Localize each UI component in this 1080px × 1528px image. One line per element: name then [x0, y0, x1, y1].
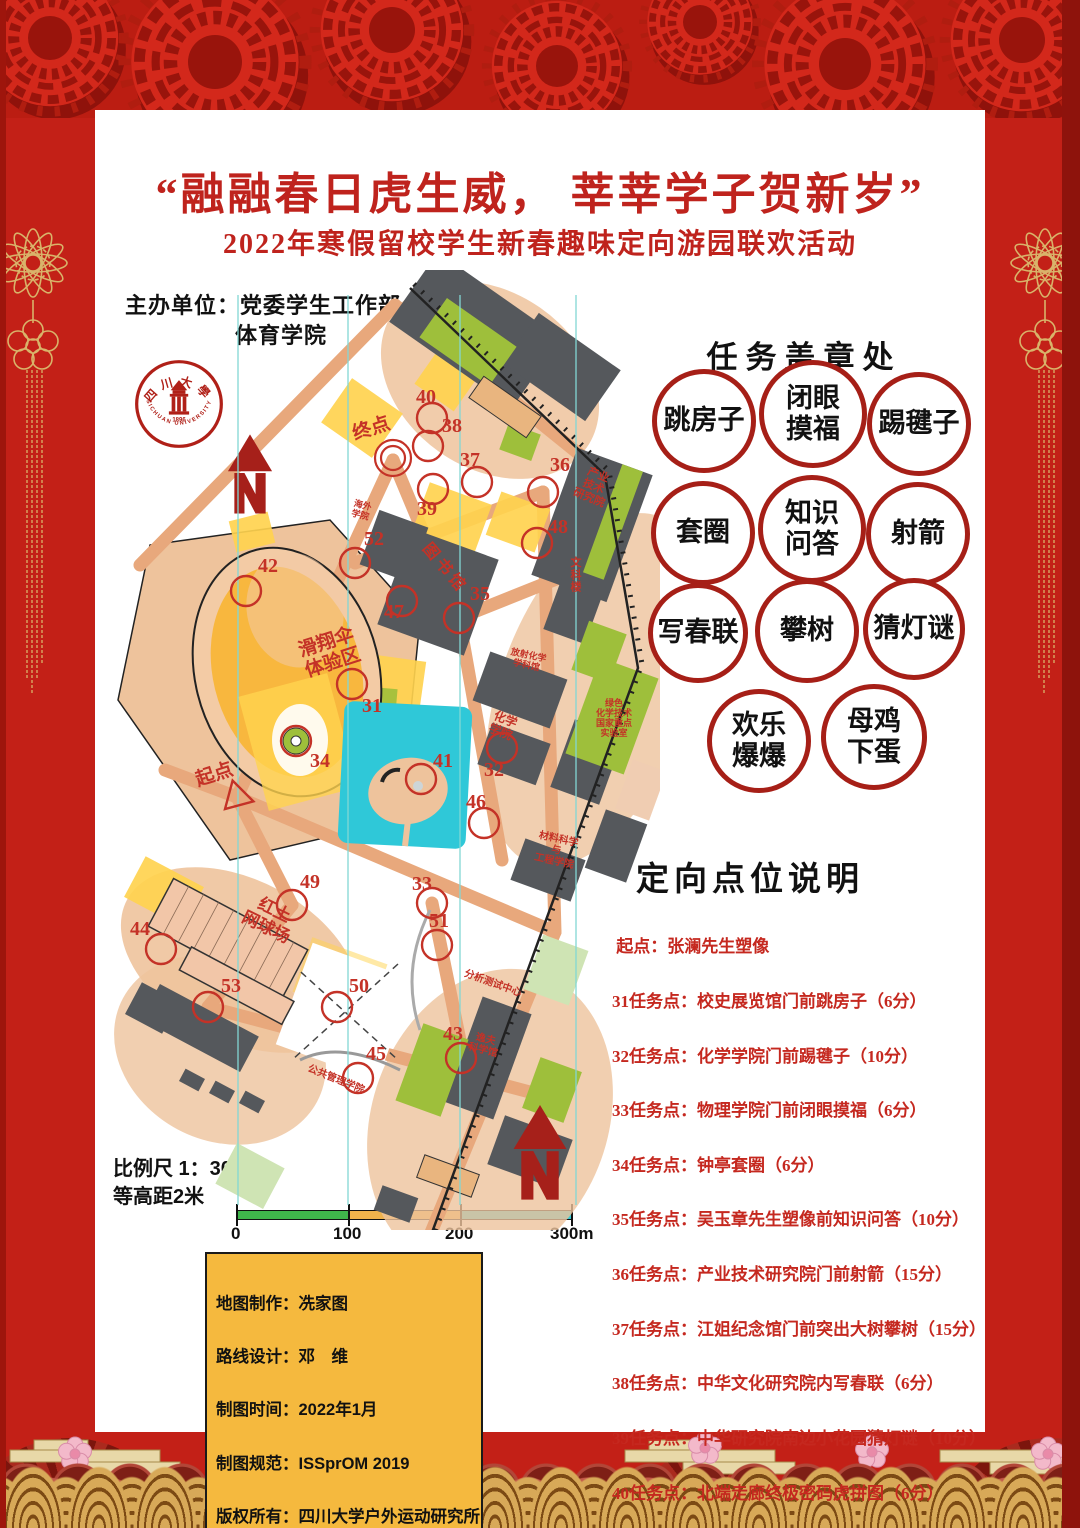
checkpoint-circle	[340, 548, 370, 578]
checkpoint-number: 40	[416, 386, 436, 408]
scale-label: 300m	[550, 1224, 593, 1244]
stamp-circle-riddles: 猜灯谜	[863, 578, 965, 680]
map-label: 文科楼	[571, 555, 583, 594]
scale-tick	[571, 1204, 573, 1226]
scale-bar-segment	[460, 1211, 571, 1219]
map-label: 绿色化学技术国家重点实验室	[596, 697, 632, 738]
map-scale-text: 比例尺 1：3000 等高距2米	[113, 1155, 254, 1211]
point-line: 34任务点：钟亭套圈（6分）	[612, 1157, 992, 1175]
event-subtitle: 2022年寒假留校学生新春趣味定向游园联欢活动	[95, 222, 985, 262]
scale-tick	[460, 1204, 462, 1226]
finish-circle	[375, 440, 411, 476]
map-label: 海外学院	[350, 497, 373, 522]
scale-bar-segment	[349, 1211, 460, 1219]
checkpoint-number: 33	[412, 873, 432, 895]
checkpoint-circle	[446, 1043, 476, 1073]
checkpoint-number: 36	[550, 454, 570, 476]
map-label: 产业技术研究院	[571, 462, 616, 510]
point-line: 37任务点：江姐纪念馆门前突出大树攀树（15分）	[612, 1321, 992, 1339]
checkpoint-circle	[413, 431, 443, 461]
checkpoint-number: 32	[484, 759, 504, 781]
checkpoint-circle	[146, 934, 176, 964]
checkpoint-circle	[528, 477, 558, 507]
checkpoint-circle	[487, 733, 517, 763]
logo-year: 1896	[172, 417, 186, 423]
point-line: 38任务点：中华文化研究院内写春联（6分）	[612, 1375, 992, 1393]
stamp-circle-hopscotch: 跳房子	[652, 369, 756, 473]
poster-panel: “融融春日虎生威， 莘莘学子贺新岁” 2022年寒假留校学生新春趣味定向游园联欢…	[95, 110, 985, 1432]
stamp-circle-ring-toss: 套圈	[651, 481, 755, 585]
start-triangle	[225, 781, 253, 809]
stamp-circle-shuttlecock: 踢毽子	[867, 372, 971, 476]
checkpoint-number: 34	[310, 750, 330, 772]
scale-label: 200	[445, 1224, 473, 1244]
checkpoint-number: 52	[364, 528, 384, 550]
checkpoint-circle	[417, 888, 447, 918]
checkpoint-number: 35	[470, 583, 490, 605]
checkpoint-number: 38	[442, 415, 462, 437]
stamp-circle-quiz: 知识 问答	[758, 475, 866, 583]
scale-bar-segment	[238, 1211, 349, 1219]
checkpoint-circle	[322, 992, 352, 1022]
checkpoint-number: 53	[221, 975, 241, 997]
start-label: 起点	[192, 758, 236, 791]
lotus-pond	[337, 701, 472, 850]
top-border-ornament	[0, 0, 1080, 118]
left-edge-band	[0, 0, 6, 1528]
checkpoint-number: 44	[130, 918, 150, 940]
scale-tick	[348, 1204, 350, 1226]
event-title: “融融春日虎生威， 莘莘学子贺新岁”	[95, 158, 985, 222]
checkpoint-number: 41	[433, 750, 453, 772]
checkpoint-number: 42	[258, 555, 278, 577]
checkpoint-number: 39	[417, 498, 437, 520]
checkpoint-number: 51	[429, 910, 449, 932]
point-line: 33任务点：物理学院门前闭眼摸福（6分）	[612, 1102, 992, 1120]
checkpoint-circle	[418, 474, 448, 504]
map-label: 红土网球场	[239, 889, 302, 946]
finish-circle	[381, 446, 405, 470]
stadium-platform	[118, 520, 420, 860]
event-poster: “融融春日虎生威， 莘莘学子贺新岁” 2022年寒假留校学生新春趣味定向游园联欢…	[0, 0, 1080, 1528]
credit-line: 地图制作：冼家图	[216, 1296, 472, 1314]
map-label: 放射化学学科馆	[507, 645, 548, 673]
checkpoint-circle	[231, 576, 261, 606]
points-list: 起点：张澜先生塑像 31任务点：校史展览馆门前跳房子（6分） 32任务点：化学学…	[612, 902, 992, 1528]
checkpoint-number: 45	[366, 1043, 386, 1065]
checkpoint-circle	[277, 890, 307, 920]
scale-bar	[237, 1210, 572, 1220]
checkpoint-circle	[337, 669, 367, 699]
point-line: 39任务点：中华研究院南边小花园猜灯谜（10分）	[612, 1430, 992, 1448]
sichuan-university-logo: 四川大學 SICHUAN UNIVERSITY 1896	[133, 358, 225, 450]
stamp-circle-hen-egg: 母鸡 下蛋	[821, 684, 927, 790]
stamp-circle-popcorn: 欢乐 爆爆	[707, 689, 811, 793]
north-arrow-icon	[514, 1105, 567, 1200]
point-line: 32任务点：化学学院门前踢毽子（10分）	[612, 1048, 992, 1066]
checkpoint-circle	[387, 586, 417, 616]
credit-line: 路线设计：邓 维	[216, 1349, 472, 1367]
checkpoint-number: 46	[466, 791, 486, 813]
organizer-line2: 体育学院	[235, 318, 327, 350]
map-label: 化学学院	[487, 707, 520, 742]
organizer-line1: 主办单位：党委学生工作部（处）	[125, 288, 470, 320]
map-label: 公共管理学院	[306, 1061, 367, 1096]
map-label: 滑翔伞体验区	[295, 622, 364, 682]
scale-label: 100	[333, 1224, 361, 1244]
points-section-heading: 定向点位说明	[622, 852, 878, 900]
north-arrow-icon	[228, 434, 272, 513]
bell-pavilion	[283, 728, 309, 754]
map-label: 分析测试中心	[463, 966, 524, 999]
tennis-courts	[137, 878, 318, 1024]
checkpoint-circle	[193, 992, 223, 1022]
finish-label: 终点	[349, 411, 392, 445]
left-border-tassel	[0, 118, 95, 758]
checkpoint-circle	[469, 808, 499, 838]
credit-line: 制图规范：ISSprOM 2019	[216, 1456, 472, 1474]
checkpoint-circle	[522, 528, 552, 558]
checkpoint-number: 47	[384, 601, 404, 623]
checkpoint-number: 48	[548, 516, 568, 538]
scale-tick	[236, 1204, 238, 1226]
point-line: 31任务点：校史展览馆门前跳房子（6分）	[612, 993, 992, 1011]
right-edge-band	[1062, 0, 1080, 1528]
stamp-circle-archery: 射箭	[866, 482, 970, 586]
credit-line: 版权所有：四川大学户外运动研究所	[216, 1509, 472, 1527]
scale-label: 0	[231, 1224, 240, 1244]
checkpoint-number: 49	[300, 871, 320, 893]
checkpoint-circle	[462, 467, 492, 497]
point-line: 起点：张澜先生塑像	[612, 938, 992, 956]
point-line: 40任务点：北端走廊终极密码虎拼图（6分）	[612, 1485, 992, 1503]
map-label: 逸夫科学馆	[467, 1029, 502, 1060]
map-credits-box: 地图制作：冼家图 路线设计：邓 维 制图时间：2022年1月 制图规范：ISSp…	[205, 1252, 483, 1528]
checkpoint-number: 50	[349, 975, 369, 997]
map-label: 材料科学与工程学院	[533, 828, 579, 871]
checkpoint-circle	[343, 1063, 373, 1093]
checkpoint-circle	[406, 764, 436, 794]
map-label: 图 书 馆	[419, 539, 470, 594]
paraglider-stadium	[167, 527, 406, 816]
credit-line: 制图时间：2022年1月	[216, 1402, 472, 1420]
map-boundary	[410, 288, 638, 1230]
checkpoint-circle	[422, 930, 452, 960]
point-line: 36任务点：产业技术研究院门前射箭（15分）	[612, 1266, 992, 1284]
point-line: 35任务点：吴玉章先生塑像前知识问答（10分）	[612, 1211, 992, 1229]
checkpoint-circle	[281, 726, 311, 756]
checkpoint-number: 37	[460, 449, 480, 471]
checkpoint-circle	[444, 603, 474, 633]
checkpoint-number: 43	[443, 1023, 463, 1045]
stamp-circle-tree-climb: 攀树	[755, 579, 859, 683]
stamp-circle-couplets: 写春联	[648, 583, 748, 683]
stamp-circle-blindfold: 闭眼 摸福	[759, 360, 867, 468]
checkpoint-circle	[417, 403, 447, 433]
checkpoint-number: 31	[362, 695, 382, 717]
